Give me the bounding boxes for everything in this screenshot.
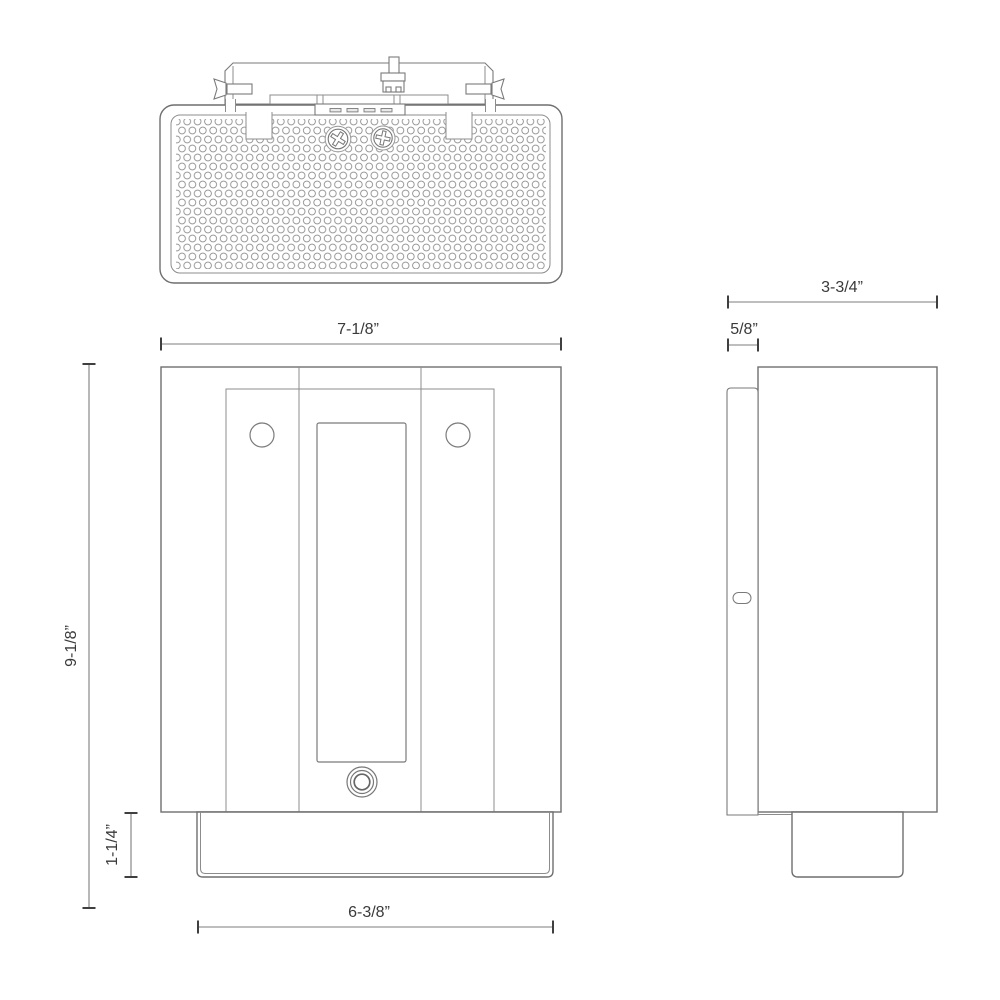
top-view bbox=[160, 57, 562, 283]
vent-slot bbox=[347, 109, 358, 112]
side-body bbox=[758, 367, 937, 812]
housing-top bbox=[160, 99, 562, 283]
dim-base-height: 1-1/4” bbox=[104, 813, 138, 877]
technical-drawing: 7-1/8” 9-1/8” 1-1/4” 6-3/8” bbox=[0, 0, 1000, 1000]
dim-base-height-label: 1-1/4” bbox=[104, 824, 121, 866]
keyhole-tab-left bbox=[246, 112, 272, 139]
vent-slot bbox=[381, 109, 392, 112]
dim-height: 9-1/8” bbox=[63, 364, 96, 908]
dim-depth-label: 3-3/4” bbox=[821, 279, 863, 296]
dim-height-label: 9-1/8” bbox=[63, 625, 80, 667]
front-center-panel bbox=[317, 423, 406, 762]
spec-sheet: 7-1/8” 9-1/8” 1-1/4” 6-3/8” bbox=[0, 0, 1000, 1000]
dim-plate-depth-label: 5/8” bbox=[730, 321, 758, 338]
dim-width-label: 7-1/8” bbox=[337, 321, 379, 338]
vent-slot bbox=[330, 109, 341, 112]
front-hole-right bbox=[446, 423, 470, 447]
dim-base-width-label: 6-3/8” bbox=[348, 904, 390, 921]
center-post bbox=[381, 57, 405, 92]
vent-slot bbox=[364, 109, 375, 112]
keyhole-tab-right bbox=[446, 112, 472, 139]
screw-left-icon bbox=[325, 126, 351, 152]
dim-base-width: 6-3/8” bbox=[198, 904, 553, 934]
socket-knob bbox=[347, 767, 377, 797]
side-view: 3-3/4” 5/8” bbox=[727, 279, 937, 877]
bracket-plate bbox=[315, 104, 405, 115]
side-diffuser bbox=[792, 812, 903, 877]
front-hole-left bbox=[250, 423, 274, 447]
perforated-panel bbox=[176, 119, 546, 269]
front-view: 7-1/8” 9-1/8” 1-1/4” 6-3/8” bbox=[63, 321, 561, 934]
dim-depth: 3-3/4” bbox=[728, 279, 937, 309]
mounting-bracket bbox=[214, 57, 504, 104]
dim-plate-depth: 5/8” bbox=[728, 321, 758, 352]
screw-right-icon bbox=[371, 126, 395, 150]
dim-width: 7-1/8” bbox=[161, 321, 561, 351]
front-diffuser bbox=[197, 812, 553, 877]
plate-slot bbox=[733, 593, 751, 604]
